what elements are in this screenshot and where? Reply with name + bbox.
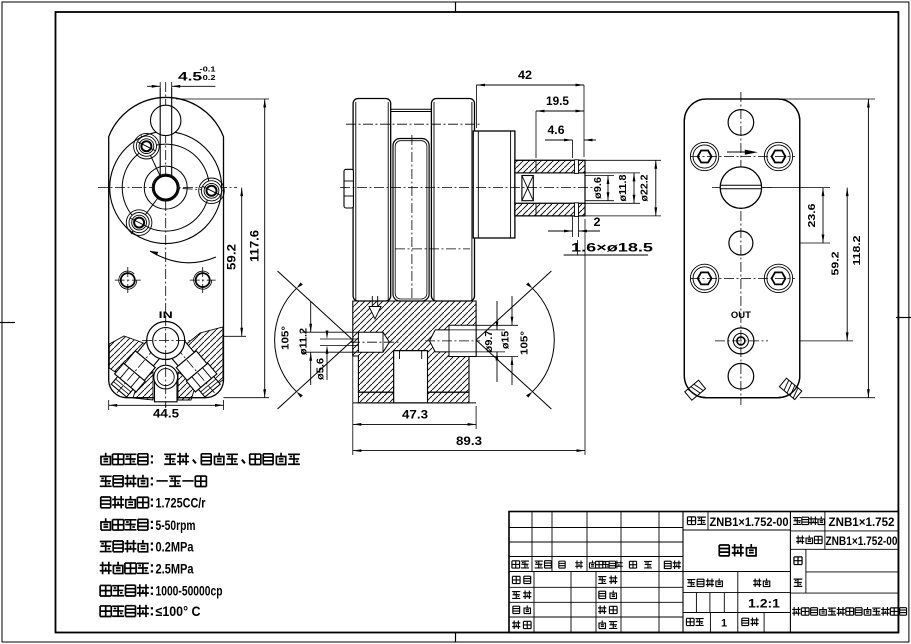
svg-text:1.2:1: 1.2:1 xyxy=(748,597,780,611)
svg-text:89.3: 89.3 xyxy=(456,436,482,448)
svg-text:ZNB1×1.752: ZNB1×1.752 xyxy=(829,515,895,529)
svg-text:1000-50000cp: 1000-50000cp xyxy=(156,584,223,599)
svg-text:ZNB1×1.752-00: ZNB1×1.752-00 xyxy=(826,536,898,548)
svg-text:1.725CC/r: 1.725CC/r xyxy=(156,496,207,511)
svg-text:ø9.6: ø9.6 xyxy=(592,177,604,199)
svg-text:105°: 105° xyxy=(519,331,531,355)
svg-text:4.6: 4.6 xyxy=(548,125,565,137)
svg-text:118.2: 118.2 xyxy=(851,235,863,265)
svg-text:ø11.8: ø11.8 xyxy=(617,174,629,201)
svg-text:ø22.2: ø22.2 xyxy=(639,174,651,201)
svg-text:5-50rpm: 5-50rpm xyxy=(156,518,196,533)
svg-text:23.6: 23.6 xyxy=(806,203,818,227)
svg-text:117.6: 117.6 xyxy=(249,230,261,262)
svg-text:ø9.7: ø9.7 xyxy=(483,330,495,352)
svg-text:2.5MPa: 2.5MPa xyxy=(156,561,194,576)
svg-text:59.2: 59.2 xyxy=(830,251,842,275)
svg-text:44.5: 44.5 xyxy=(153,409,180,421)
svg-text:≤100° C: ≤100° C xyxy=(156,604,201,619)
svg-text:1: 1 xyxy=(721,618,727,630)
svg-text:19.5: 19.5 xyxy=(546,96,570,108)
svg-text:1.6×ø18.5: 1.6×ø18.5 xyxy=(571,243,654,255)
svg-text:OUT: OUT xyxy=(731,310,751,321)
svg-text:ø5.6: ø5.6 xyxy=(315,358,327,380)
svg-text:105°: 105° xyxy=(280,326,292,350)
svg-text:0.2MPa: 0.2MPa xyxy=(156,540,194,555)
svg-text:ZNB1×1.752-00: ZNB1×1.752-00 xyxy=(710,515,789,529)
svg-text:59.2: 59.2 xyxy=(227,244,239,270)
svg-text:ø11.2: ø11.2 xyxy=(298,328,310,355)
svg-text:42: 42 xyxy=(518,70,532,82)
svg-text:47.3: 47.3 xyxy=(402,410,428,422)
svg-text:-0.2: -0.2 xyxy=(200,73,216,82)
svg-text:ø15: ø15 xyxy=(500,331,512,349)
svg-text:2: 2 xyxy=(594,217,601,229)
